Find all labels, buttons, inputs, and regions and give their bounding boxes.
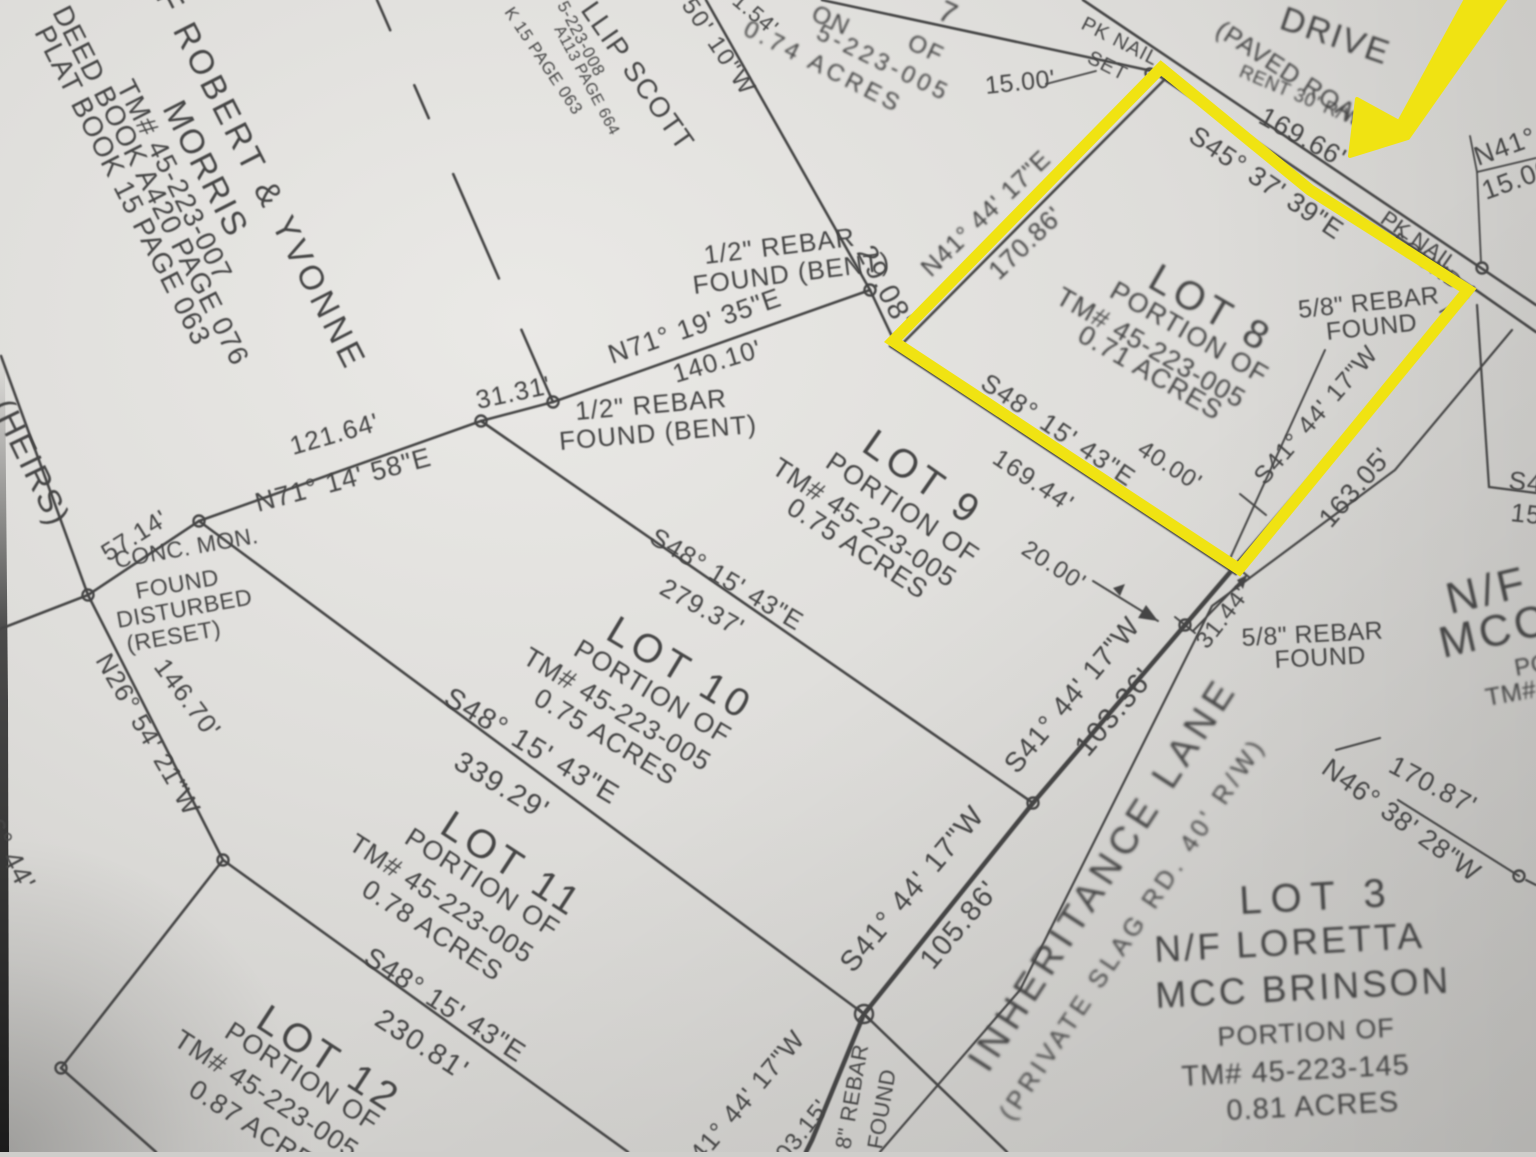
svg-text:LOT 3: LOT 3	[1238, 871, 1396, 923]
svg-text:S4: S4	[1507, 465, 1536, 498]
svg-text:FOUND: FOUND	[1274, 641, 1367, 674]
svg-text:15: 15	[1509, 497, 1536, 530]
